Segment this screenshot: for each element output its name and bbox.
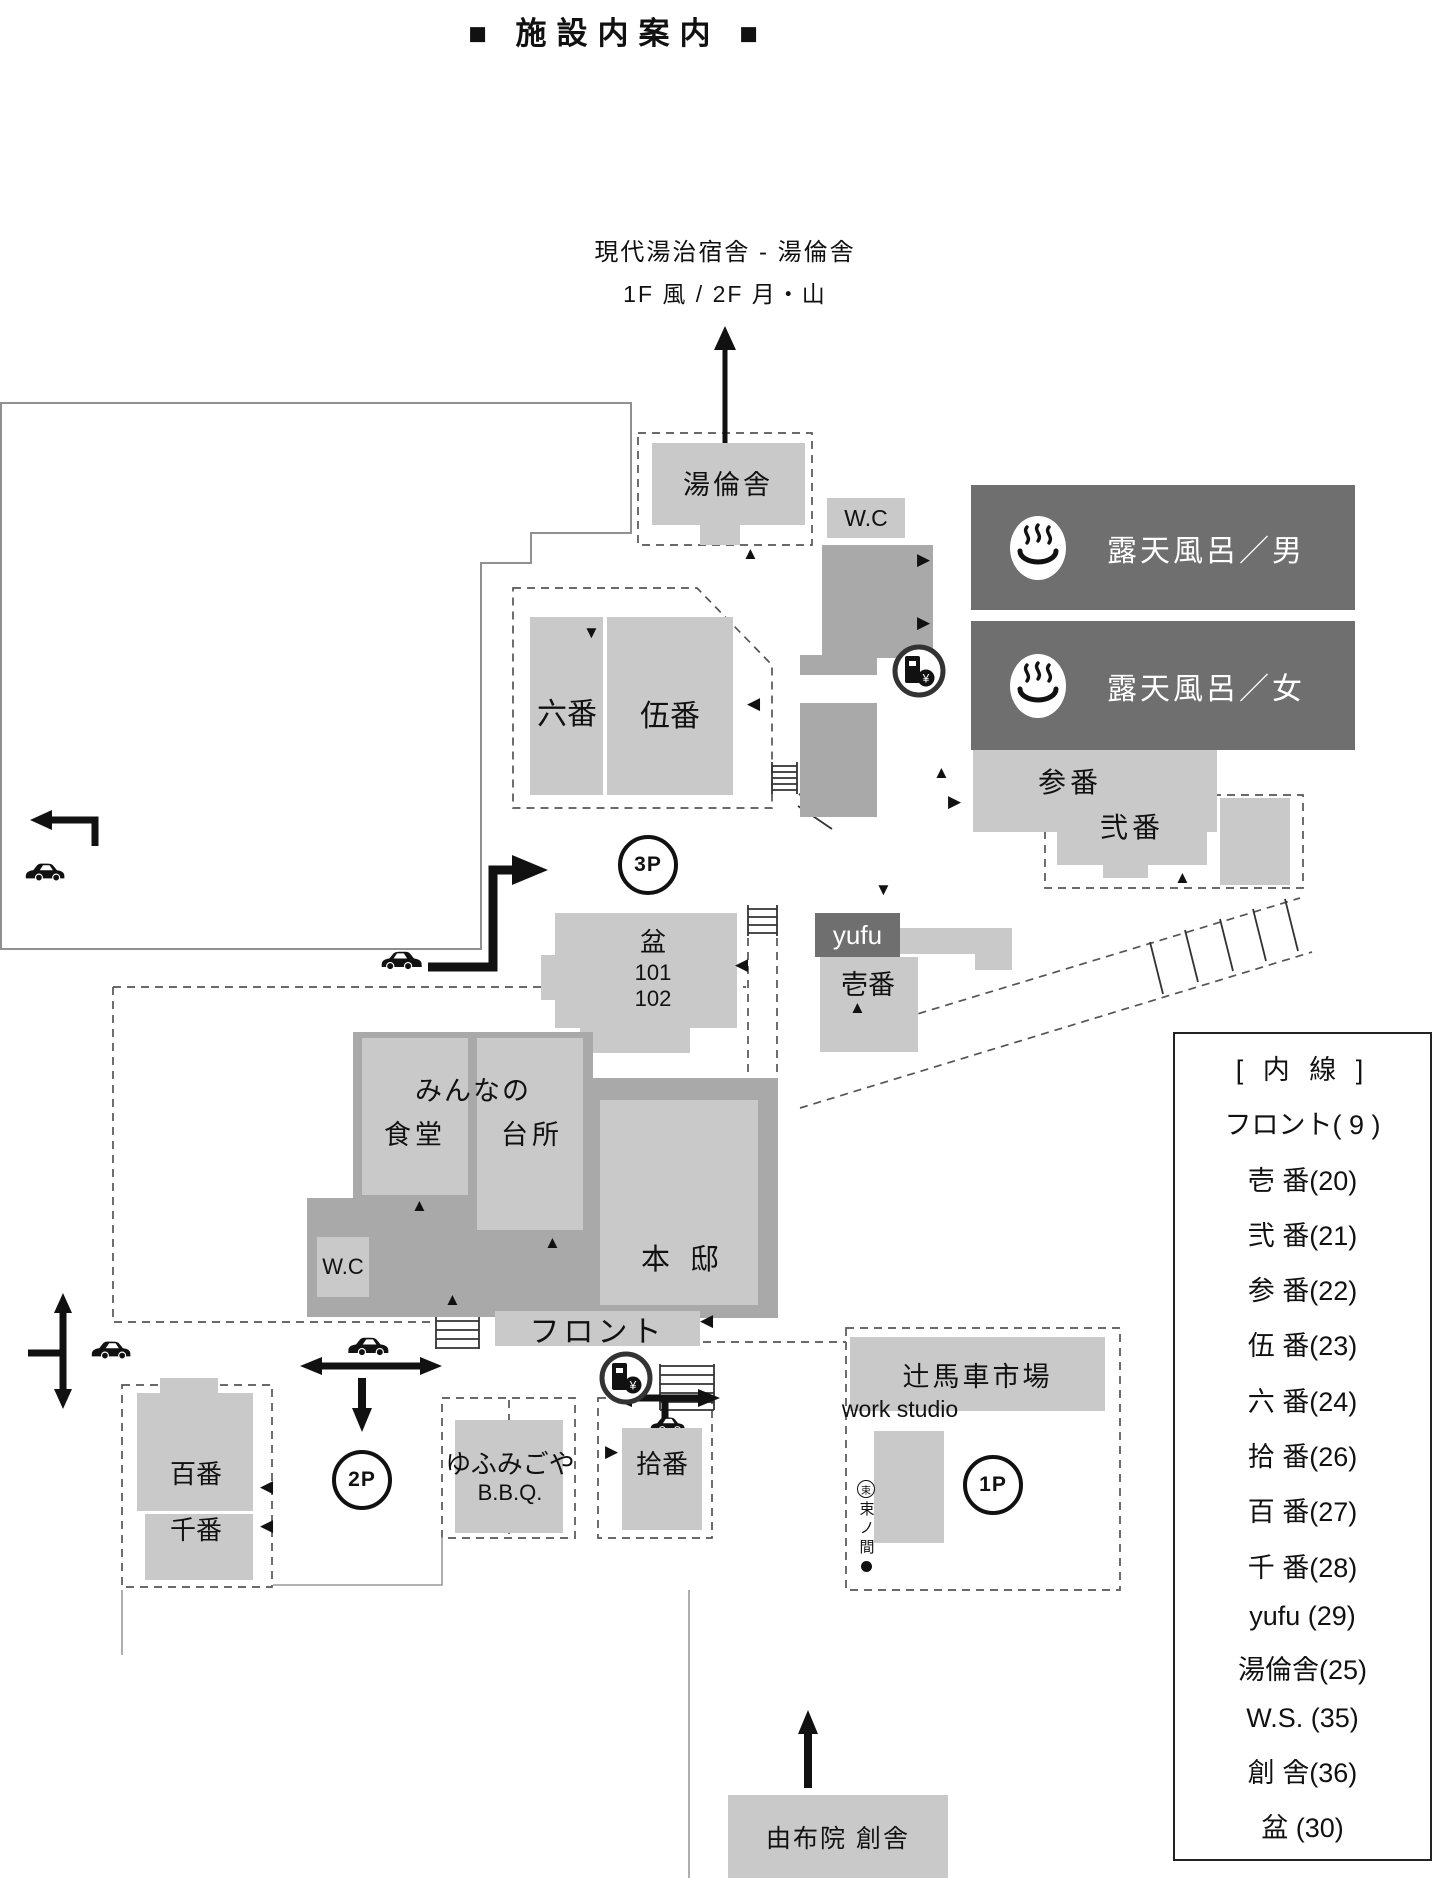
hontei-label: 本 邸 [628,1244,738,1277]
legend-entry: 弐 番(21) [1248,1214,1358,1253]
minnano-label: みんなの [408,1076,538,1107]
wc-top-building: W.C [827,498,905,538]
brand-location: 由布院温泉 [55,710,445,737]
sign-dot-icon [861,1561,872,1572]
rokuban-label: 六番 [527,698,607,733]
brand-subtitle: YUFUIN RELAXATION LOCATION [55,684,445,703]
legend-entry: W.S. (35) [1246,1703,1359,1734]
niban-label: 弐番 [1082,812,1182,844]
brand-emblem-glyph: 束 [233,504,267,553]
ticket-machine-icon [602,1354,650,1402]
yurinsha-building-annex [700,525,740,545]
work-studio-building [874,1431,944,1543]
yufu-building-arm [900,928,1012,954]
niban-building-tab [1103,860,1148,878]
entrance-marker-up-icon: ▲ [1174,869,1191,886]
sign-emblem-glyph: 束 [861,1482,871,1497]
tsukanoma-sign: 束 束ノ間 [849,1480,883,1572]
extension-legend: [ 内 線 ] フロント( 9 ) 壱 番(20) 弐 番(21) 参 番(22… [1173,1032,1432,1861]
legend-entry: 伍 番(23) [1248,1324,1358,1363]
entrance-marker-left-icon: ◀ [735,956,748,973]
yurinsha-annotation: 現代湯治宿舎 - 湯倫舎 1F 風 / 2F 月・山 [520,232,930,309]
niban-building-annex [1220,798,1290,885]
entrance-marker-left-icon: ◀ [747,695,760,712]
yufu-building-arm-tab [975,954,1012,970]
legend-title: [ 内 線 ] [1236,1048,1370,1087]
wc-center-room: W.C [317,1237,369,1297]
bon-label: 盆 [633,928,673,958]
brand-name: 束ノ間 [55,589,445,676]
onsen-icon [1005,649,1071,723]
bon-building-tab-bottom [580,1028,690,1053]
facility-map: ¥ [0,0,1440,1878]
sanban-label: 参番 [1020,767,1120,799]
entrance-marker-up-icon: ▲ [933,764,950,781]
page-title: ■ 施設内案内 ■ [0,8,1236,53]
brand-romaji: tsukanoma [55,564,445,587]
legend-entry: 盆 (30) [1261,1806,1344,1845]
entrance-marker-down-icon: ▼ [875,881,892,898]
entrance-marker-left-icon: ◀ [260,1517,273,1534]
annotation-line2: 1F 風 / 2F 月・山 [520,275,930,309]
legend-entry: yufu (29) [1249,1601,1356,1632]
hyakuban-label: 百番 [166,1460,226,1490]
legend-entry: 千 番(28) [1248,1546,1358,1585]
goban-label: 伍番 [615,700,725,735]
bath-men-label: 露天風呂／男 [1107,526,1305,570]
bath-women-label: 露天風呂／女 [1107,664,1305,708]
yufu-building: yufu [815,913,900,957]
entrance-marker-right-icon: ▶ [917,551,930,568]
entrance-marker-right-icon: ▶ [917,614,930,631]
legend-entry: 湯倫舎(25) [1238,1648,1367,1687]
legend-entry: 壱 番(20) [1248,1159,1358,1198]
entrance-marker-up-icon: ▲ [544,1234,561,1251]
yurinsha-label: 湯倫舎 [663,470,793,501]
entrance-marker-up-icon: ▲ [849,999,866,1016]
onsen-icon [1005,511,1071,585]
hyakuban-building-tab [160,1378,218,1394]
annotation-line1: 現代湯治宿舎 - 湯倫舎 [520,232,930,267]
sign-emblem-icon: 束 [857,1480,875,1498]
shokudo-room [362,1038,468,1195]
entrance-marker-down-icon: ▼ [583,624,600,641]
bath-women-banner: 露天風呂／女 [971,621,1355,750]
legend-entry: 創 舎(36) [1248,1751,1358,1790]
front-desk-bar: フロント [495,1311,700,1346]
entrance-marker-left-icon: ◀ [260,1478,273,1495]
brand-logo: 束 tsukanoma 束ノ間 YUFUIN RELAXATION LOCATI… [55,498,445,737]
legend-entry: 百 番(27) [1248,1490,1358,1529]
bon-building-tab-left [541,955,555,1000]
entrance-marker-right-icon: ▶ [948,793,961,810]
brand-emblem-icon: 束 [220,498,280,558]
senban-label: 千番 [166,1516,226,1546]
daidokoro-label: 台所 [492,1120,572,1151]
road-lines [122,1537,689,1878]
parking-1p-badge: 1P [963,1455,1023,1515]
yufumigoya-label: ゆふみごや [438,1450,582,1480]
bbq-label: B.B.Q. [474,1480,546,1505]
parking-3p-badge: 3P [618,835,678,895]
legend-entry: フロント( 9 ) [1224,1103,1380,1142]
bon-101-label: 101 [629,960,677,985]
legend-entry: 拾 番(26) [1248,1435,1358,1474]
hyakuban-building [137,1393,253,1511]
work-studio-label: work studio [820,1396,980,1422]
legend-entry: 参 番(22) [1248,1269,1358,1308]
bon-102-label: 102 [629,986,677,1011]
bathhouse-wing-lower [800,703,877,817]
entrance-marker-up-icon: ▲ [444,1291,461,1308]
bathhouse-wing-upper [800,655,877,675]
bath-men-banner: 露天風呂／男 [971,485,1355,610]
entrance-marker-right-icon: ▶ [605,1443,618,1460]
entrance-marker-left-icon: ◀ [700,1312,713,1329]
ichiban-label: 壱番 [828,970,908,1001]
juban-label: 拾番 [634,1450,690,1480]
sign-text: 束ノ間 [856,1501,877,1558]
shokudo-label: 食堂 [375,1120,455,1151]
entrance-marker-up-icon: ▲ [742,545,759,562]
entrance-marker-up-icon: ▲ [411,1197,428,1214]
parking-2p-badge: 2P [332,1450,392,1510]
sosha-building: 由布院 創舎 [728,1795,948,1878]
legend-entry: 六 番(24) [1248,1380,1358,1419]
